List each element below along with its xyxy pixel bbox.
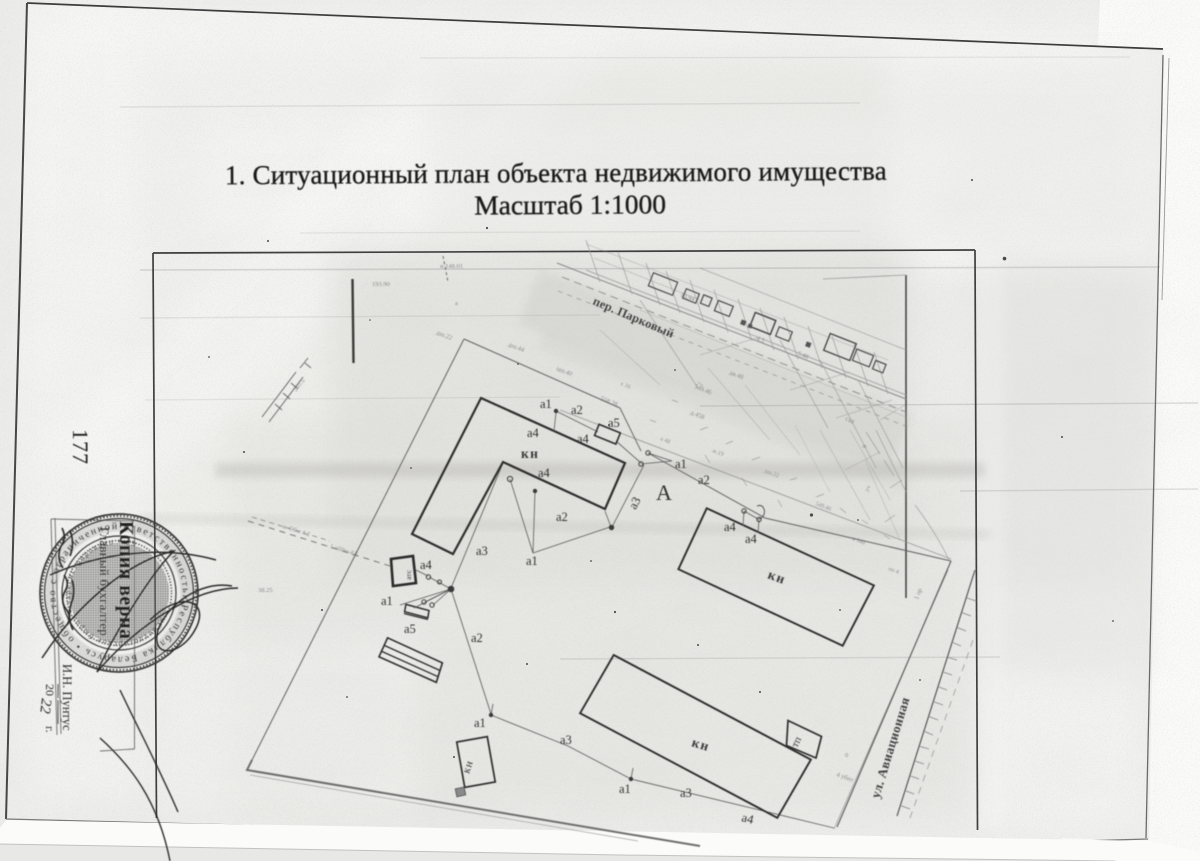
- svg-text:a5: a5: [404, 622, 416, 636]
- svg-text:a3: a3: [476, 544, 488, 558]
- svg-text:атс: атс: [404, 569, 413, 580]
- svg-text:a4: a4: [420, 558, 433, 572]
- svg-text:кн: кн: [521, 446, 539, 461]
- svg-text:a5: a5: [608, 416, 620, 430]
- svg-text:Главный бухгалтер: Главный бухгалтер: [97, 527, 112, 636]
- svg-text:177: 177: [68, 429, 93, 465]
- svg-text:a4: a4: [527, 426, 540, 440]
- svg-text:38.25: 38.25: [258, 587, 273, 594]
- svg-text:a4: a4: [577, 432, 590, 446]
- svg-text:20: 20: [43, 684, 57, 696]
- svg-text:a1: a1: [474, 716, 486, 730]
- svg-text:22: 22: [36, 698, 54, 715]
- svg-text:И.Н. Пунтус: И.Н. Пунтус: [60, 664, 74, 731]
- svg-text:a2: a2: [471, 631, 483, 645]
- svg-text:a4: a4: [745, 532, 758, 546]
- svg-text:a1: a1: [619, 782, 631, 796]
- svg-text:0: 0: [845, 752, 848, 759]
- svg-text:а: а: [455, 300, 458, 307]
- svg-text:a2: a2: [698, 473, 710, 487]
- svg-text:a1: a1: [540, 397, 552, 411]
- svg-text:a1: a1: [381, 594, 393, 608]
- svg-text:a3: a3: [680, 786, 692, 800]
- svg-text:a1: a1: [526, 554, 538, 568]
- svg-text:a4: a4: [724, 520, 737, 534]
- svg-text:Масштаб 1:1000: Масштаб 1:1000: [474, 188, 666, 220]
- svg-text:a4: a4: [538, 466, 551, 480]
- svg-text:А: А: [656, 480, 672, 505]
- svg-text:1. Ситуационный план объекта н: 1. Ситуационный план объекта недвижимого…: [225, 156, 887, 191]
- svg-text:193.90: 193.90: [372, 281, 390, 288]
- svg-text:г.: г.: [43, 726, 57, 733]
- svg-text:a2: a2: [556, 510, 568, 524]
- svg-text:и 148.01: и 148.01: [440, 263, 463, 270]
- svg-text:a1: a1: [675, 457, 687, 471]
- svg-text:a2: a2: [571, 403, 583, 417]
- svg-text:a3: a3: [560, 733, 572, 747]
